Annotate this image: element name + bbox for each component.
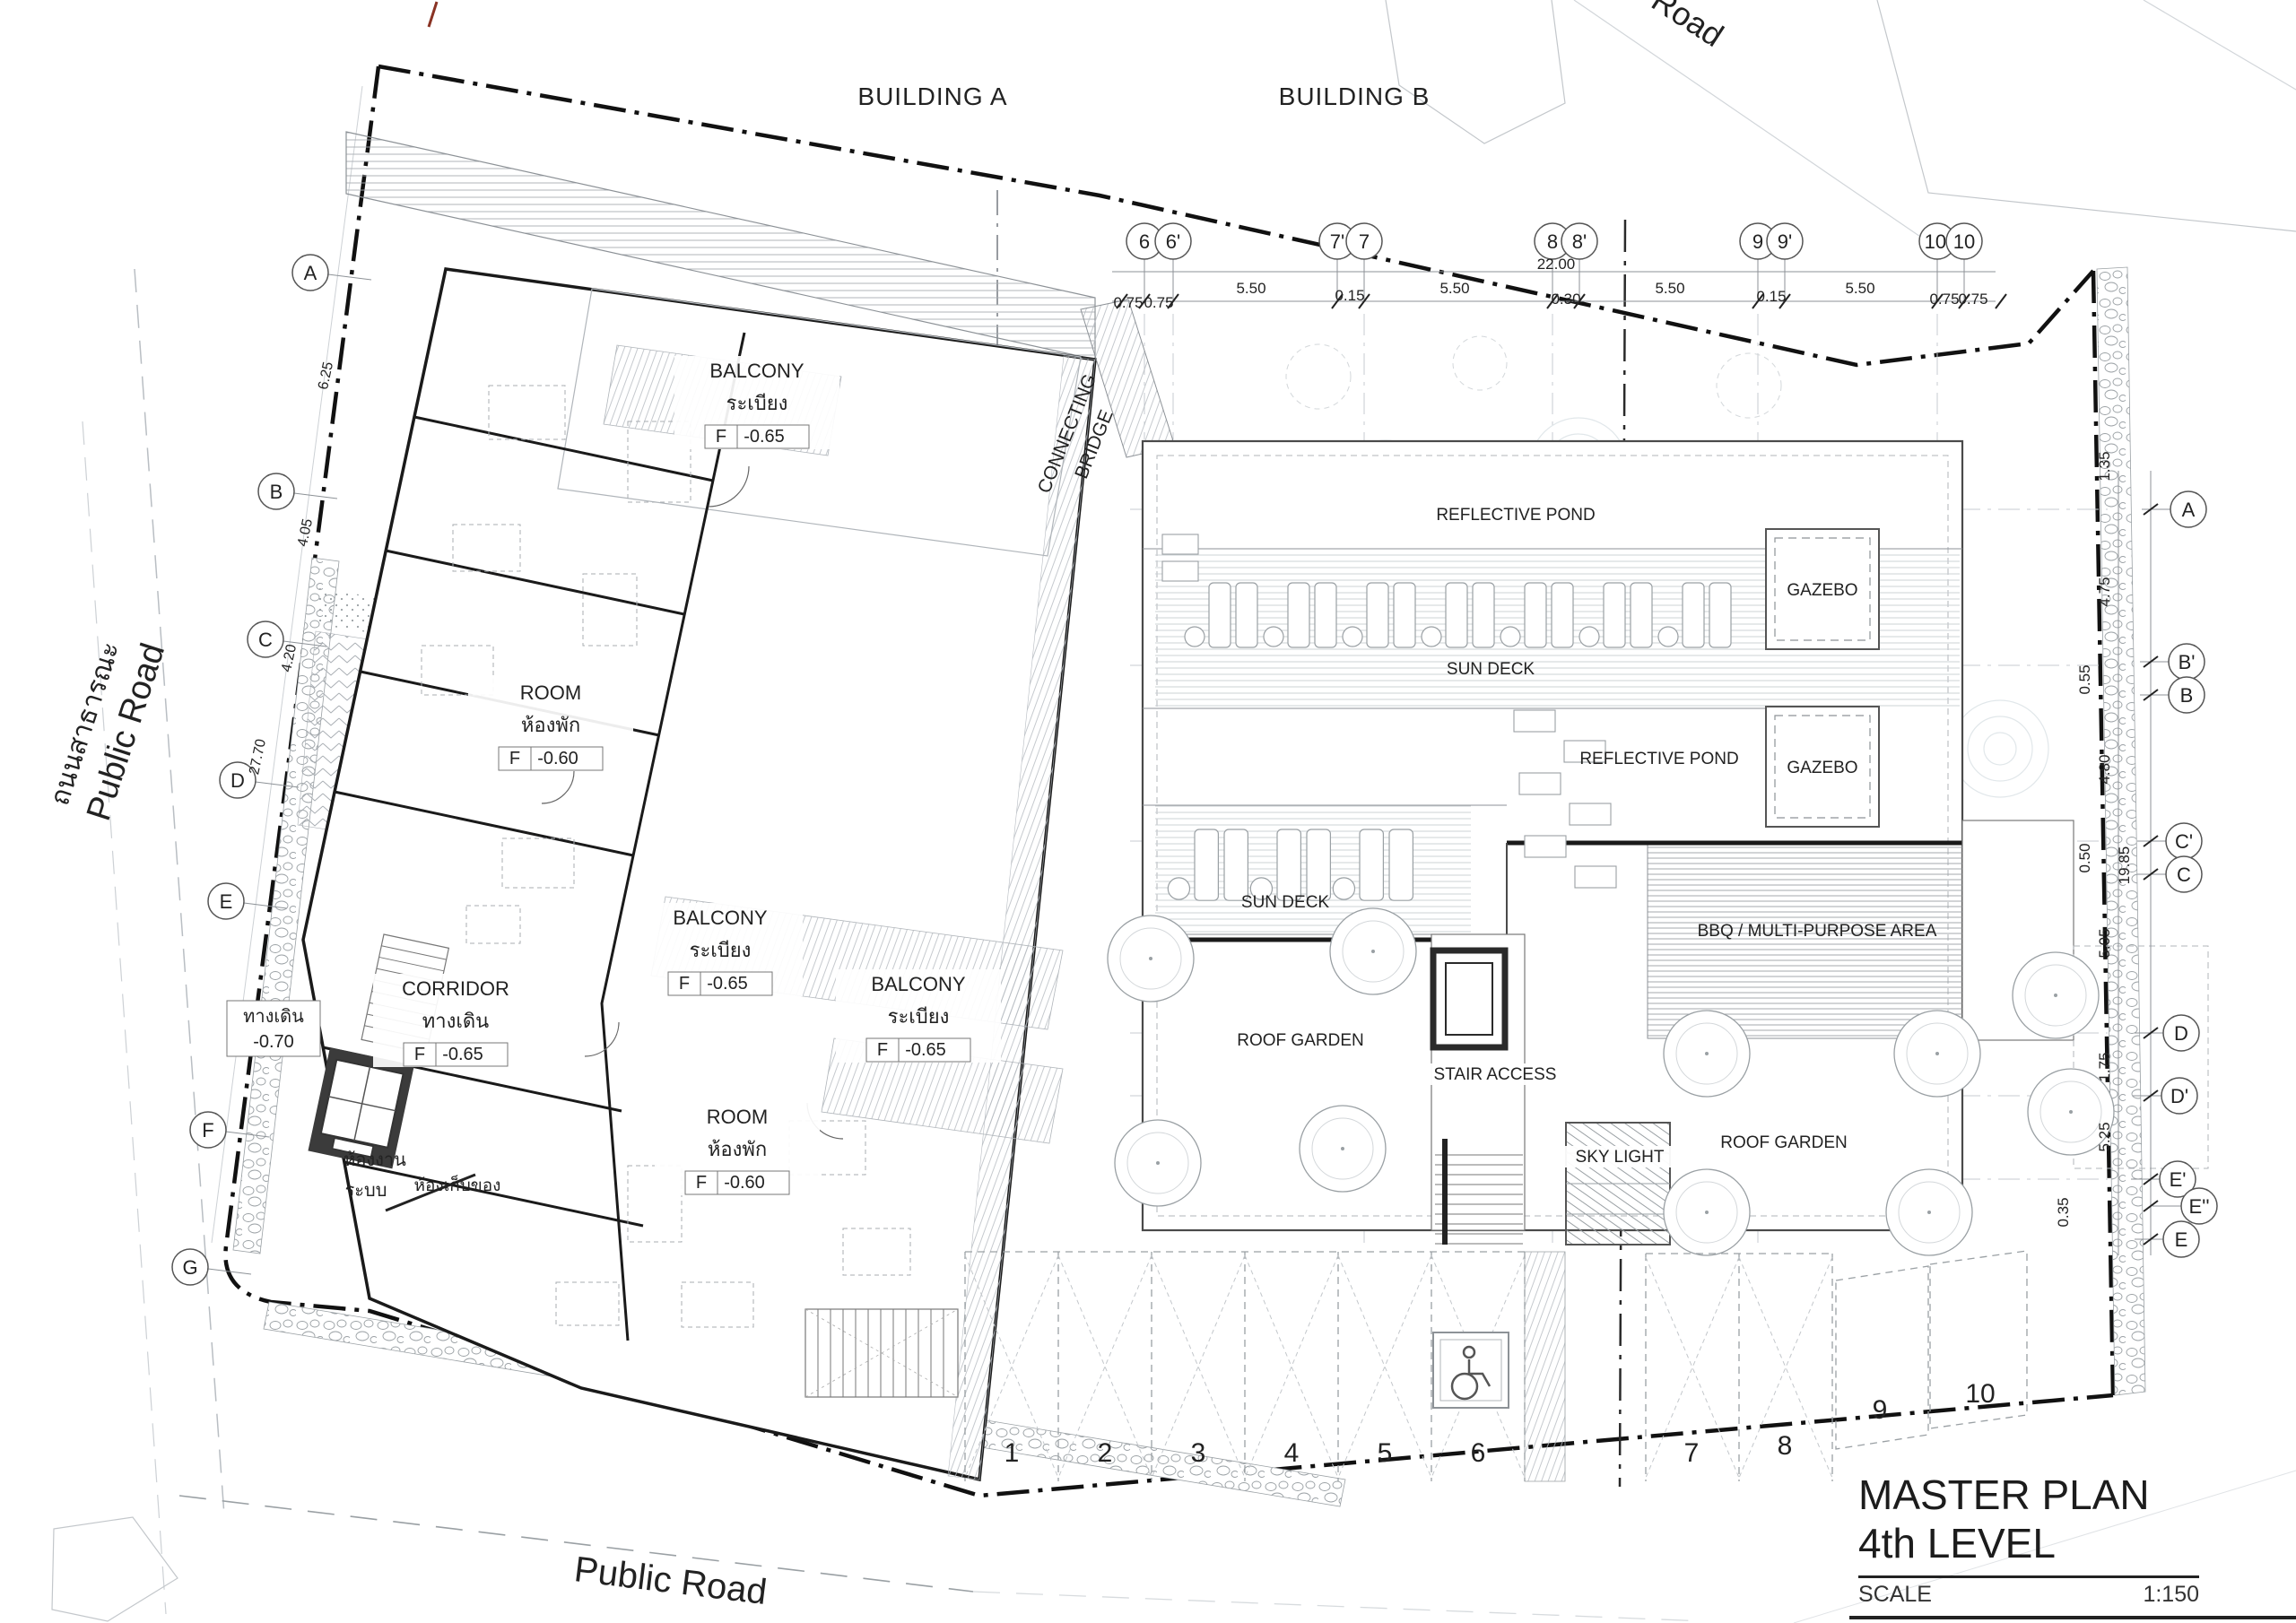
title-block: MASTER PLAN 4th LEVEL SCALE 1:150: [1858, 1471, 2199, 1608]
grid-bubble-right: B': [2179, 651, 2196, 673]
floor-plan-drawing: 66'7'788'99'10'100.750.755.500.155.5022.…: [0, 0, 2296, 1623]
dimension-top: 5.50: [1655, 280, 1684, 297]
parking-number: 7: [1684, 1438, 1700, 1468]
level-prefix: F: [509, 749, 520, 768]
level-value: -0.65: [442, 1045, 483, 1064]
sky-light-label: SKY LIGHT: [1576, 1148, 1665, 1167]
room-label-thai: ห้องพัก: [521, 714, 580, 736]
bbq-label: BBQ / MULTI-PURPOSE AREA: [1698, 922, 1937, 941]
room-label: ROOM: [707, 1106, 768, 1128]
roof-garden-label: ROOF GARDEN: [1720, 1133, 1847, 1152]
grid-bubble-right: D: [2174, 1022, 2188, 1045]
gazebo-label: GAZEBO: [1787, 759, 1857, 777]
parking-number: 9: [1873, 1395, 1888, 1425]
generated-plan-content: 66'7'788'99'10'100.750.755.500.155.5022.…: [45, 0, 2296, 1623]
reflective-pond-label: REFLECTIVE POND: [1436, 506, 1595, 525]
dimension-right: 0.55: [2076, 664, 2093, 694]
grid-bubble-left: D: [230, 769, 245, 792]
grid-bubble-right: D': [2170, 1085, 2188, 1107]
parking-number: 1: [1004, 1438, 1020, 1468]
dimension-top: 5.50: [1236, 280, 1265, 297]
level-prefix: F: [716, 427, 726, 447]
level-prefix: F: [679, 974, 690, 994]
dimension-right: 4.80: [2096, 754, 2113, 784]
parking-number: 2: [1098, 1438, 1113, 1468]
road-label-top: Road: [1646, 0, 1731, 54]
dimension-top: 0.75: [1144, 294, 1173, 311]
stair-access-label: STAIR ACCESS: [1434, 1065, 1557, 1084]
room-label-thai: ระเบียง: [690, 939, 752, 961]
grid-bubble-right: C: [2177, 864, 2191, 886]
roof-garden-label: ROOF GARDEN: [1237, 1031, 1363, 1050]
dimension-left: 6.25: [316, 360, 336, 391]
dimension-right: 5.25: [2096, 1122, 2113, 1151]
grid-bubble-left: B: [270, 481, 283, 503]
dimension-left: 4.05: [295, 517, 316, 548]
grid-bubble-top: 8': [1572, 230, 1587, 253]
grid-bubble-top: 9: [1752, 230, 1763, 253]
dimension-top: 0.75: [1958, 291, 1987, 308]
grid-bubble-top: 7: [1359, 230, 1370, 253]
level-prefix: F: [877, 1040, 888, 1060]
grid-bubble-left: E: [220, 890, 233, 913]
level-value: -0.60: [724, 1173, 765, 1193]
scale-value: 1:150: [2143, 1582, 2199, 1608]
room-label-thai: ระเบียง: [726, 392, 788, 414]
grid-bubble-left: A: [304, 262, 317, 284]
grid-bubble-left: G: [182, 1256, 197, 1279]
parking-number: 5: [1378, 1438, 1393, 1468]
grid-bubble-top: 7': [1330, 230, 1344, 253]
room-label-thai: ทางเดิน: [422, 1010, 489, 1032]
parking-number: 8: [1778, 1431, 1793, 1461]
dimension-top: 0.75: [1929, 291, 1959, 308]
parking-number: 3: [1191, 1438, 1206, 1468]
room-label: ROOM: [520, 681, 581, 704]
grid-bubble-right: E': [2170, 1168, 2187, 1191]
level-prefix: F: [696, 1173, 707, 1193]
dimension-right: 5.05: [2096, 928, 2113, 958]
level-value: -0.60: [537, 749, 578, 768]
grid-bubble-right: E: [2175, 1228, 2188, 1251]
dimension-right: 1.75: [2096, 1052, 2113, 1081]
sun-deck-label: SUN DECK: [1241, 893, 1330, 912]
grid-bubble-right: E'': [2188, 1195, 2209, 1218]
dimension-top: 0.15: [1756, 288, 1786, 305]
walkway-level: -0.70: [253, 1032, 294, 1052]
room-label: CORRIDOR: [402, 977, 509, 1000]
wheelchair-icon: [1433, 1332, 1509, 1408]
title-line2: 4th LEVEL: [1858, 1519, 2199, 1567]
grid-bubble-right: B: [2180, 684, 2194, 707]
level-value: -0.65: [905, 1040, 946, 1060]
gazebo-label: GAZEBO: [1787, 581, 1857, 600]
building-b-title: BUILDING B: [1256, 82, 1453, 111]
grid-bubble-right: C': [2175, 830, 2193, 853]
system-room-label: ระบบ: [345, 1181, 387, 1201]
system-room-label: ห้องงาน: [344, 1150, 406, 1170]
grid-bubble-left: C: [258, 629, 273, 651]
room-label: BALCONY: [871, 973, 965, 995]
dimension-top: 5.50: [1439, 280, 1469, 297]
room-label-thai: ห้องพัก: [708, 1138, 767, 1160]
level-value: -0.65: [707, 974, 748, 994]
dimension-right: 0.35: [2055, 1197, 2072, 1227]
dimension-top: 5.50: [1845, 280, 1874, 297]
sun-deck-label: SUN DECK: [1447, 660, 1535, 679]
grid-bubble-top: 6': [1166, 230, 1180, 253]
level-value: -0.65: [744, 427, 785, 447]
dimension-left: 27.70: [247, 738, 269, 777]
dimension-top: 0.15: [1335, 287, 1364, 304]
dimension-right: 4.75: [2096, 577, 2113, 606]
building-a-title: BUILDING A: [834, 82, 1031, 111]
storage-label: ห้องเก็บของ: [414, 1174, 501, 1195]
dimension-right: 1.35: [2096, 451, 2113, 481]
dimension-top: 22.00: [1537, 256, 1576, 273]
reflective-pond-label: REFLECTIVE POND: [1579, 750, 1738, 768]
level-prefix: F: [414, 1045, 425, 1064]
dimension-right: 19.85: [2116, 846, 2133, 885]
dimension-top: 0.75: [1113, 294, 1143, 311]
grid-bubble-top: 9': [1778, 230, 1792, 253]
dimension-top: 0.30: [1551, 291, 1580, 308]
room-label-thai: ระเบียง: [888, 1005, 950, 1028]
road-label-bottom: Public Road: [572, 1549, 769, 1612]
grid-bubble-top: 10: [1953, 230, 1975, 253]
grid-bubble-top: 6: [1139, 230, 1150, 253]
parking-number: 6: [1471, 1438, 1486, 1468]
title-rule: [1858, 1575, 2199, 1578]
dimension-right: 0.50: [2076, 843, 2093, 872]
parking-number: 10: [1965, 1379, 1995, 1409]
walkway-label: ทางเดิน: [243, 1007, 304, 1027]
title-line1: MASTER PLAN: [1858, 1471, 2199, 1519]
grid-bubble-right: A: [2182, 499, 2196, 521]
room-label: BALCONY: [709, 360, 804, 382]
parking-number: 4: [1284, 1438, 1300, 1468]
grid-bubble-left: F: [202, 1119, 213, 1141]
room-label: BALCONY: [673, 907, 767, 929]
scale-label: SCALE: [1858, 1582, 1932, 1608]
grid-bubble-top: 8: [1547, 230, 1558, 253]
master-plan-sheet: 66'7'788'99'10'100.750.755.500.155.5022.…: [0, 0, 2296, 1623]
